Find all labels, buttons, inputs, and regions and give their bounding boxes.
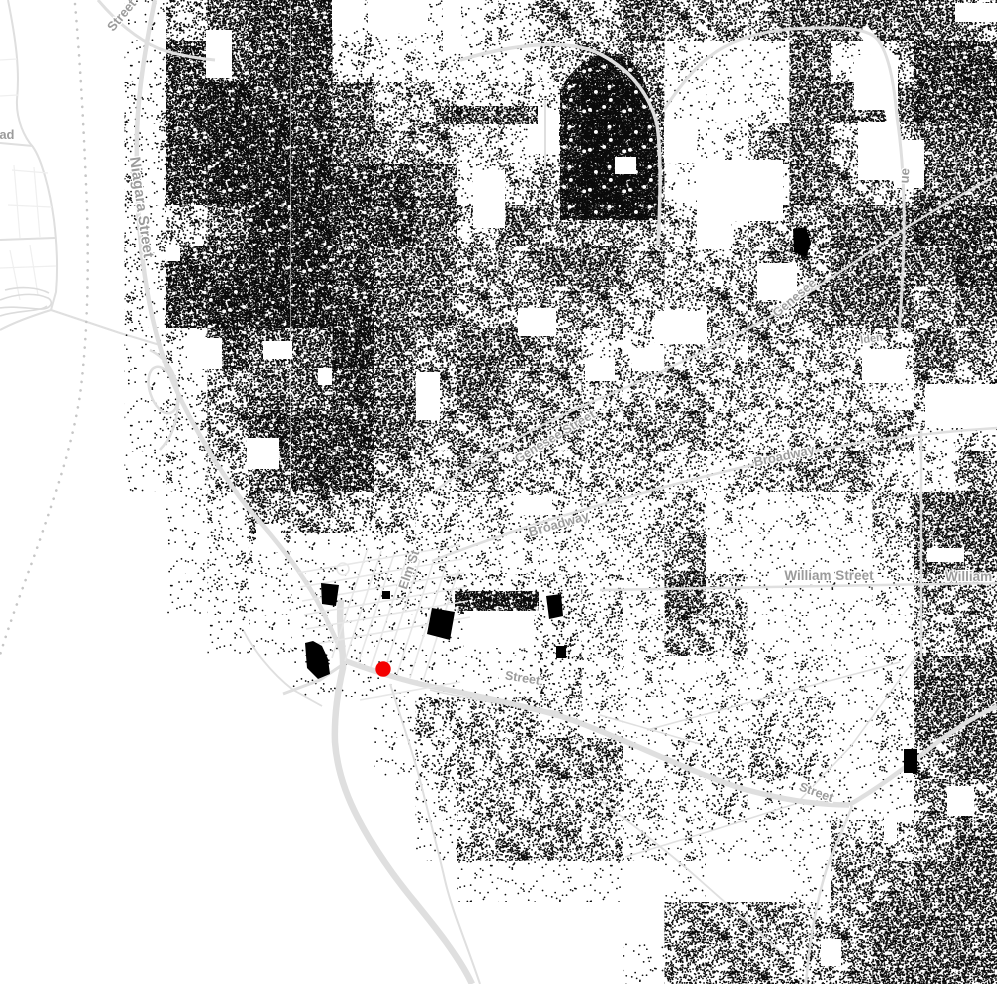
- svg-text:ue: ue: [897, 168, 913, 184]
- svg-text:William Street: William Street: [784, 568, 874, 583]
- svg-text:William S: William S: [945, 569, 997, 584]
- svg-text:Road: Road: [0, 127, 15, 142]
